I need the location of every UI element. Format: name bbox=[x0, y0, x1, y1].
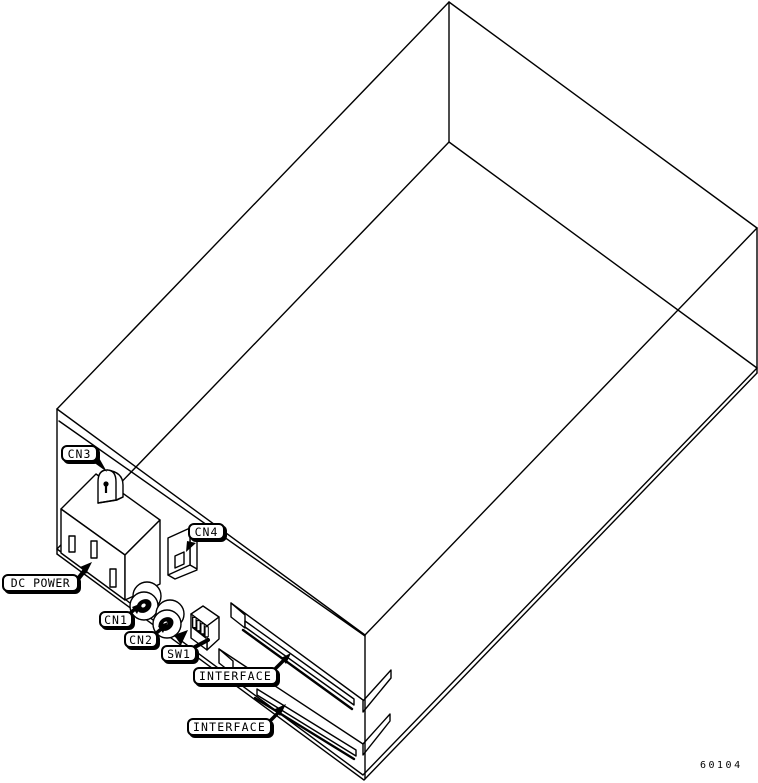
callout-cn4: CN4 bbox=[188, 523, 225, 540]
figure-number: 60104 bbox=[700, 760, 743, 771]
step-right-return bbox=[363, 670, 391, 712]
sw1-toggle-2 bbox=[197, 621, 200, 631]
outlet-slot-2 bbox=[91, 541, 97, 558]
cn3-connector bbox=[98, 470, 123, 503]
outlet-slot-3 bbox=[110, 569, 116, 587]
sw1-toggle-4 bbox=[205, 627, 208, 637]
callout-dc-power: DC POWER bbox=[2, 574, 79, 592]
callout-cn2: CN2 bbox=[124, 631, 158, 648]
step-right-return bbox=[363, 714, 390, 755]
callout-interface-lower: INTERFACE bbox=[187, 718, 272, 736]
callout-cn3: CN3 bbox=[61, 445, 98, 462]
step-left-cap bbox=[231, 603, 245, 628]
cn4-front-face bbox=[168, 528, 190, 575]
step-edge bbox=[231, 603, 363, 700]
chassis-bottom-rim bbox=[57, 373, 757, 780]
sw1-toggle-3 bbox=[201, 624, 204, 634]
sw1-toggle-1 bbox=[193, 618, 196, 628]
cn3-keyhole-stem bbox=[105, 485, 107, 493]
chassis-bottom-edges bbox=[57, 368, 757, 775]
chassis-front-top-edges bbox=[57, 228, 757, 636]
chassis-top-edges bbox=[57, 2, 757, 409]
chassis-side-vertical-edges bbox=[57, 228, 757, 779]
callout-cn1: CN1 bbox=[99, 611, 133, 628]
chassis-wireframe bbox=[57, 2, 757, 780]
callout-sw1: SW1 bbox=[161, 645, 197, 662]
chassis-inner-bottom-edges bbox=[57, 142, 757, 549]
outlet-slot-1 bbox=[69, 536, 75, 552]
figure-isometric-chassis-diagram: CN3 CN4 DC POWER CN1 CN2 SW1 INTERFACE I… bbox=[0, 0, 758, 783]
diagram-artwork bbox=[0, 0, 758, 783]
callout-interface-upper: INTERFACE bbox=[193, 667, 278, 685]
